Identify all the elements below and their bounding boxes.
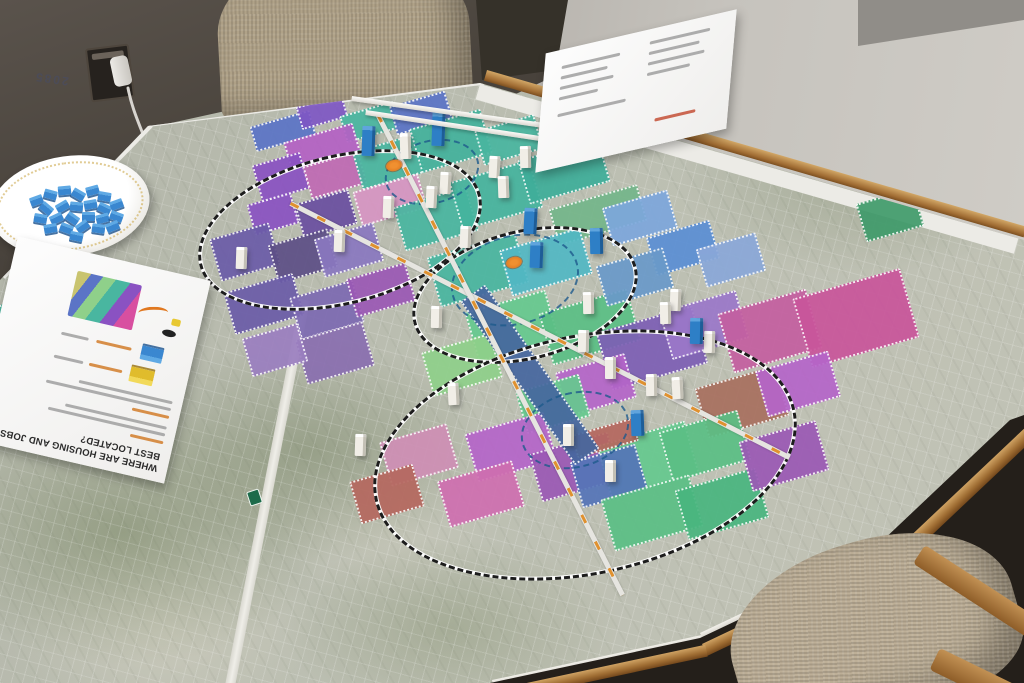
- white-building-piece: [425, 186, 437, 209]
- white-building-piece: [704, 331, 715, 353]
- white-building-piece: [563, 424, 574, 446]
- photo-scene: 2085 WHERE ARE HOUSING AND JOBS BEST LOC…: [0, 0, 1024, 683]
- blue-lego-brick: [91, 223, 105, 234]
- blue-lego-brick: [109, 198, 124, 211]
- white-building-piece: [460, 226, 472, 248]
- blue-building-piece: [631, 410, 645, 436]
- blue-lego-brick: [43, 223, 57, 234]
- blue-lego-brick: [83, 199, 97, 210]
- white-building-piece: [431, 306, 442, 328]
- blue-building-piece: [530, 242, 544, 268]
- white-building-piece: [383, 196, 395, 218]
- white-building-piece: [605, 460, 616, 482]
- blue-lego-brick: [71, 187, 87, 201]
- blue-lego-brick: [58, 185, 72, 195]
- text-line: [647, 63, 690, 76]
- white-building-piece: [520, 146, 531, 168]
- blue-lego-brick: [70, 201, 84, 211]
- white-building-piece: [583, 292, 594, 314]
- white-building-piece: [488, 156, 500, 179]
- white-building-piece: [355, 434, 367, 456]
- text-line: [650, 28, 711, 45]
- white-building-piece: [670, 289, 682, 311]
- blue-lego-brick: [69, 231, 84, 243]
- text-line: [557, 98, 625, 117]
- legend-label: [89, 363, 123, 374]
- white-building-piece: [646, 374, 657, 396]
- blue-lego-brick: [43, 188, 58, 200]
- lego-brick-pile: [0, 0, 200, 280]
- logo-text: [654, 109, 695, 122]
- white-building-piece: [439, 172, 451, 195]
- example-map-thumbnail: [67, 271, 142, 331]
- white-building-piece: [498, 176, 510, 198]
- white-building-piece: [605, 357, 616, 379]
- legend-arrow-icon: [138, 307, 168, 320]
- blue-lego-brick: [97, 191, 111, 202]
- legend-note: [61, 332, 89, 341]
- text-line: [562, 53, 621, 70]
- legend-dot-icon: [171, 318, 181, 327]
- blue-lego-brick: [33, 213, 47, 224]
- blue-building-piece: [361, 126, 375, 156]
- white-building-piece: [236, 247, 248, 269]
- legend-note: [54, 355, 84, 365]
- white-building-piece: [400, 133, 412, 159]
- blue-building-piece: [431, 112, 445, 146]
- housing-brick-icon: [139, 345, 164, 364]
- jobs-brick-icon: [128, 366, 155, 386]
- white-building-piece: [660, 302, 671, 324]
- white-building-piece: [334, 230, 346, 252]
- text-line: [46, 379, 171, 411]
- legend-road-icon: [161, 328, 176, 338]
- white-building-piece: [447, 383, 459, 406]
- white-building-piece: [671, 377, 683, 400]
- text-line: [559, 88, 598, 100]
- blue-building-piece: [690, 318, 703, 344]
- white-building-piece: [578, 330, 589, 352]
- blue-building-piece: [523, 208, 537, 235]
- legend-label: [96, 340, 132, 351]
- blue-building-piece: [590, 228, 603, 254]
